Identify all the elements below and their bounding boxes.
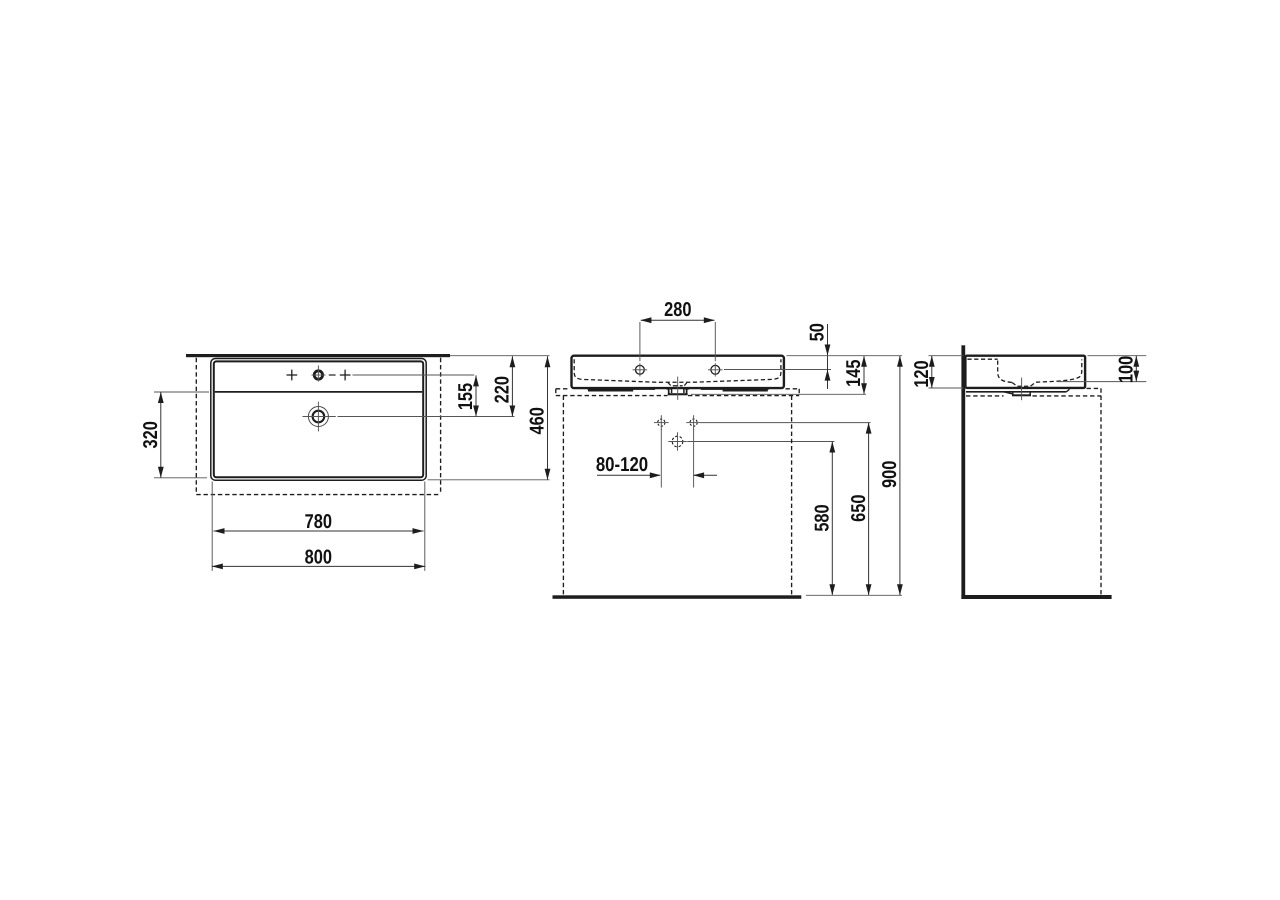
svg-text:900: 900 xyxy=(879,461,901,488)
svg-text:155: 155 xyxy=(455,383,477,410)
svg-text:120: 120 xyxy=(911,360,933,387)
svg-text:580: 580 xyxy=(812,504,834,531)
svg-text:100: 100 xyxy=(1116,356,1138,383)
svg-text:800: 800 xyxy=(305,547,332,569)
svg-text:50: 50 xyxy=(807,323,829,341)
svg-text:460: 460 xyxy=(527,407,549,434)
svg-text:780: 780 xyxy=(305,511,332,533)
svg-text:145: 145 xyxy=(843,360,865,387)
svg-text:320: 320 xyxy=(140,421,162,448)
svg-text:220: 220 xyxy=(492,376,514,403)
svg-text:80-120: 80-120 xyxy=(596,454,648,476)
svg-text:650: 650 xyxy=(848,495,870,522)
svg-text:280: 280 xyxy=(664,299,691,321)
